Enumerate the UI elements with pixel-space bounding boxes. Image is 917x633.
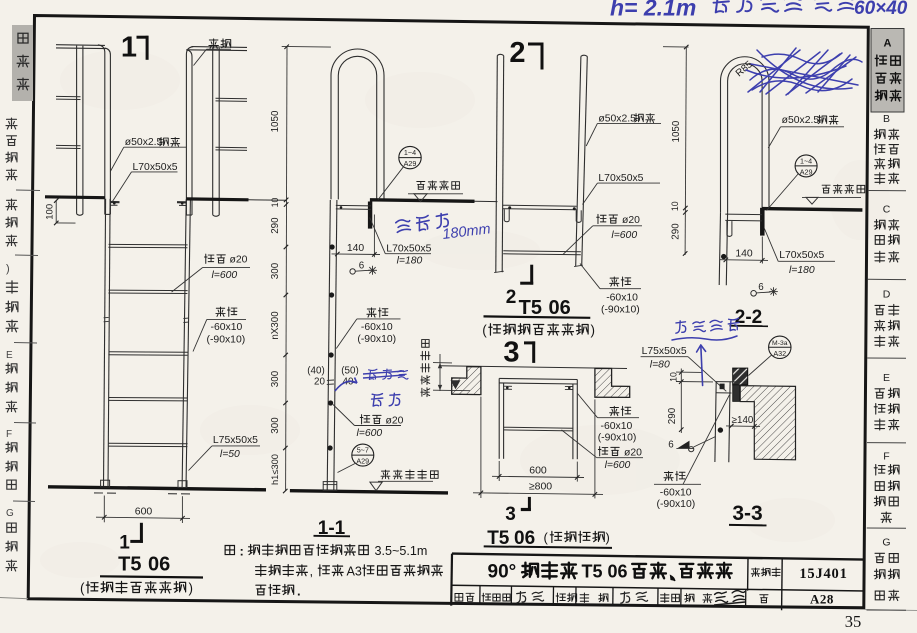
svg-text:3: 3: [503, 337, 519, 369]
svg-text:L70x50x5: L70x50x5: [386, 243, 431, 254]
svg-text:C: C: [883, 204, 891, 216]
svg-text:1050: 1050: [671, 120, 682, 142]
svg-text:A: A: [884, 38, 892, 50]
svg-text:(: (: [482, 322, 487, 337]
svg-text:L70x50x5: L70x50x5: [133, 162, 178, 173]
svg-text:ø50x2.5: ø50x2.5: [125, 137, 163, 148]
svg-text:A29: A29: [800, 168, 813, 177]
svg-text:3.5~5.1m: 3.5~5.1m: [375, 544, 428, 558]
svg-text:300: 300: [270, 370, 281, 387]
svg-text:l=180: l=180: [789, 265, 815, 276]
svg-text:5~7: 5~7: [357, 446, 369, 455]
svg-text:G: G: [882, 537, 890, 549]
svg-text:l=180: l=180: [397, 256, 423, 267]
svg-text:1050: 1050: [270, 110, 281, 132]
svg-text:.: .: [297, 583, 301, 598]
svg-text:): ): [606, 530, 610, 545]
svg-text:15J401: 15J401: [799, 566, 847, 582]
svg-text:6: 6: [359, 260, 365, 271]
svg-text:-60x10: -60x10: [606, 292, 638, 303]
svg-text:(-90x10): (-90x10): [357, 334, 396, 345]
svg-text:l=80: l=80: [650, 360, 670, 371]
svg-text:300: 300: [270, 417, 281, 434]
svg-text:A32: A32: [773, 349, 786, 358]
svg-text:D: D: [883, 289, 891, 301]
svg-text:≥140: ≥140: [732, 415, 754, 426]
svg-text:140: 140: [347, 243, 365, 254]
svg-text:(40): (40): [307, 366, 324, 377]
svg-text:10: 10: [669, 372, 679, 382]
svg-text:A3: A3: [347, 565, 362, 579]
svg-text:-60x10: -60x10: [660, 487, 692, 498]
svg-text:l=600: l=600: [611, 230, 637, 241]
svg-text:F: F: [883, 451, 889, 463]
svg-text:≥800: ≥800: [529, 481, 552, 493]
svg-text:-60x10: -60x10: [211, 322, 243, 333]
svg-text:T5: T5: [118, 554, 141, 576]
svg-text:ø20: ø20: [624, 447, 642, 458]
svg-text:L70x50x5: L70x50x5: [598, 173, 643, 184]
svg-text:nX300: nX300: [270, 311, 281, 340]
svg-text:140: 140: [735, 248, 753, 259]
svg-text::: :: [240, 543, 244, 558]
svg-text:600: 600: [529, 465, 547, 477]
svg-text:ø20: ø20: [230, 255, 248, 266]
svg-text:ø50x2.5: ø50x2.5: [782, 115, 820, 126]
svg-text:,: ,: [310, 564, 314, 579]
svg-text:60×40: 60×40: [854, 0, 908, 19]
svg-text:1: 1: [121, 32, 137, 64]
svg-text:2: 2: [509, 37, 525, 69]
svg-text:h= 2.1m: h= 2.1m: [610, 0, 696, 21]
svg-text:(-90x10): (-90x10): [657, 499, 696, 510]
svg-text:M-3a: M-3a: [772, 340, 788, 347]
svg-text:20: 20: [314, 377, 325, 388]
svg-text:A29: A29: [356, 457, 369, 466]
svg-text:290: 290: [667, 407, 678, 424]
svg-text:290: 290: [671, 223, 682, 240]
svg-text:10: 10: [270, 198, 280, 208]
svg-text:1~4: 1~4: [404, 148, 416, 157]
svg-text:B: B: [883, 113, 890, 125]
svg-text:A29: A29: [404, 159, 417, 168]
svg-text:300: 300: [270, 262, 281, 279]
svg-text:T5 06: T5 06: [582, 561, 628, 581]
svg-text:1: 1: [119, 533, 130, 554]
svg-text:35: 35: [845, 612, 862, 631]
svg-text:6: 6: [668, 439, 674, 450]
svg-text:): ): [189, 581, 194, 596]
svg-text:(50): (50): [341, 366, 358, 377]
svg-text:90°: 90°: [488, 561, 517, 582]
svg-text:(-90x10): (-90x10): [601, 305, 640, 316]
svg-text:l=600: l=600: [605, 460, 631, 471]
svg-text:ø50x2.5: ø50x2.5: [598, 113, 636, 124]
svg-text:(-90x10): (-90x10): [207, 334, 246, 345]
svg-text:L75x50x5: L75x50x5: [213, 435, 258, 446]
svg-text:2: 2: [506, 287, 517, 308]
svg-text:G: G: [6, 508, 14, 519]
svg-text:L75x50x5: L75x50x5: [642, 346, 687, 357]
svg-text:10: 10: [670, 201, 680, 211]
svg-text:1~4: 1~4: [800, 157, 812, 166]
svg-text:ø20: ø20: [622, 215, 640, 226]
svg-text:E: E: [883, 372, 890, 384]
svg-text:l=600: l=600: [357, 428, 383, 439]
svg-text:): ): [6, 263, 10, 275]
svg-text:l=50: l=50: [220, 449, 240, 460]
svg-text:3-3: 3-3: [732, 502, 762, 525]
svg-text:3: 3: [505, 504, 516, 525]
svg-text:A28: A28: [810, 592, 834, 607]
svg-text:L70x50x5: L70x50x5: [779, 250, 824, 261]
svg-text:(: (: [80, 581, 85, 596]
svg-text:100: 100: [45, 204, 56, 220]
svg-text:): ): [591, 322, 596, 337]
svg-text:06: 06: [549, 297, 571, 319]
svg-text:290: 290: [270, 217, 281, 234]
svg-text:6: 6: [758, 282, 764, 293]
svg-text:F: F: [6, 429, 12, 440]
svg-text:(-90x10): (-90x10): [598, 432, 637, 443]
svg-text:h1≤300: h1≤300: [270, 454, 280, 485]
svg-text:-60x10: -60x10: [361, 322, 393, 333]
svg-text:ø20: ø20: [386, 415, 404, 426]
svg-text:(: (: [544, 530, 549, 545]
svg-text:600: 600: [135, 506, 153, 518]
svg-text:-60x10: -60x10: [601, 421, 633, 432]
svg-text:E: E: [6, 350, 13, 361]
svg-text:l=600: l=600: [212, 270, 238, 281]
svg-text:06: 06: [148, 554, 170, 576]
